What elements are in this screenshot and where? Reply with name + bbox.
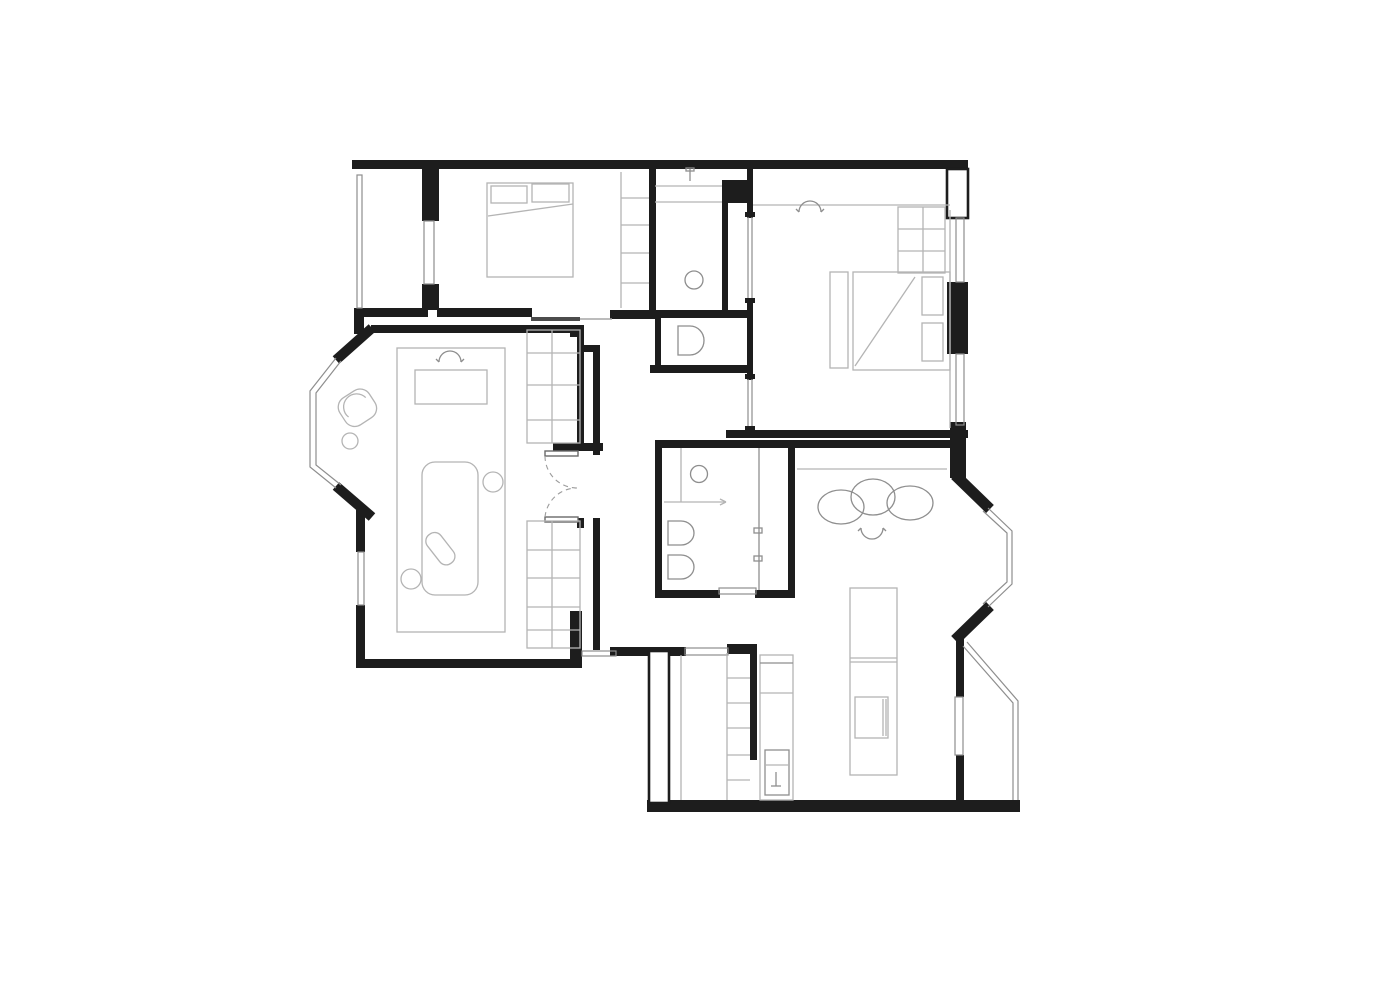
wall-living-left-low <box>356 605 365 665</box>
shower-control-1 <box>754 528 762 533</box>
bed1-pillow-right <box>532 184 569 202</box>
pouf-2 <box>401 569 421 589</box>
bed2 <box>853 272 950 370</box>
armchair <box>334 385 381 431</box>
bed2-bench <box>830 272 848 368</box>
daybed <box>422 462 478 595</box>
bay-left-glazing-outer <box>310 358 336 488</box>
bed2-pillow-top <box>922 277 943 315</box>
bay-left-glazing-inner <box>316 361 341 485</box>
bathroom-sink <box>691 466 708 483</box>
wall-hall-cap <box>553 443 603 451</box>
side-table <box>342 433 358 449</box>
shower-control-2 <box>754 556 762 561</box>
bed2-duvet-fold <box>855 277 915 366</box>
window-right-lower <box>956 354 964 425</box>
living-door-leaf-a <box>545 451 578 456</box>
wall-wc-left <box>655 318 661 372</box>
bedroom2-pocket-door-upper <box>748 216 752 302</box>
wall-dining-top <box>655 440 962 448</box>
bay-right-glazing-inner <box>983 511 1007 604</box>
wall-bed1-shower <box>649 169 656 317</box>
bathroom-door <box>719 588 756 594</box>
desk-chair <box>439 351 461 362</box>
window-living-left <box>358 552 364 605</box>
bedroom2-wardrobe <box>898 207 945 273</box>
wall-partition-lower <box>422 284 439 310</box>
wall-partition-upper <box>422 169 439 221</box>
door-jamb-2 <box>745 298 755 303</box>
shower-room-sink <box>685 271 703 289</box>
wall-living-top <box>371 325 579 333</box>
wall-bath-bottom-left <box>655 590 720 598</box>
wall-hall-right-upper <box>593 345 600 455</box>
bed1 <box>487 183 573 277</box>
wall-bed1-bottom-mid <box>437 308 532 317</box>
bathroom-bidet <box>668 555 694 579</box>
wall-entry-left-shaft <box>649 651 669 803</box>
terrace-edge-inner <box>963 646 1013 800</box>
wc-toilet <box>678 326 704 355</box>
wall-bed1-bottom-left <box>354 308 428 317</box>
bay-right-glazing-outer <box>988 508 1012 607</box>
desk <box>415 370 487 404</box>
dining-table-1 <box>818 490 864 524</box>
terrace-edge-outer <box>967 642 1018 800</box>
wall-bay-left-bottom <box>336 486 372 517</box>
wall-bedroom2-left-mid <box>747 300 753 380</box>
bed1-pillow-left <box>491 186 527 203</box>
window-left-strip <box>357 175 362 308</box>
wall-wc-bottom <box>650 365 753 373</box>
window-partition-glass <box>424 221 434 284</box>
floor-plan <box>0 0 1400 990</box>
wall-bath-left <box>655 440 662 598</box>
wall-kitchen-divider <box>750 644 757 760</box>
daybed-tray <box>423 529 459 568</box>
floor-plan-canvas <box>0 0 1400 990</box>
bed2-pillow-bottom <box>922 323 943 361</box>
wall-right-mid <box>956 636 964 697</box>
wall-wc-top <box>657 310 753 318</box>
dining-chair <box>861 528 883 539</box>
wall-bay-right-top <box>955 475 990 509</box>
living-door-arc-a <box>545 456 577 488</box>
door-jamb-3 <box>745 374 755 379</box>
wall-top <box>352 160 968 169</box>
pouf-1 <box>483 472 503 492</box>
bed1-duvet-fold <box>488 204 573 216</box>
living-door-arc-b <box>545 488 577 517</box>
door-jamb-1 <box>745 212 755 217</box>
window-right-upper <box>956 218 964 282</box>
door-jamb-4 <box>745 426 755 431</box>
wall-bath-bottom-right <box>755 590 795 598</box>
wall-bedroom2-bottom <box>726 430 968 438</box>
kitchen-island <box>850 588 897 775</box>
kitchen-sink <box>765 750 789 795</box>
armchair-seat <box>339 389 370 417</box>
wall-bath-right <box>788 440 795 598</box>
wall-hall-right-lower <box>593 518 600 650</box>
bedroom2-pocket-door-lower <box>748 378 752 428</box>
bathroom-toilet <box>668 521 694 545</box>
wall-right-upper-low <box>950 422 966 478</box>
wall-living-bottom <box>356 659 582 668</box>
living-wardrobe-upper <box>527 330 580 443</box>
window-kitchen <box>955 697 963 755</box>
wall-bay-right-bottom <box>955 606 990 640</box>
bedroom2-wall-arc <box>799 201 821 212</box>
wall-bottom <box>647 800 1020 812</box>
entry-door <box>685 648 728 655</box>
wall-bedroom2-left-top <box>747 169 753 218</box>
